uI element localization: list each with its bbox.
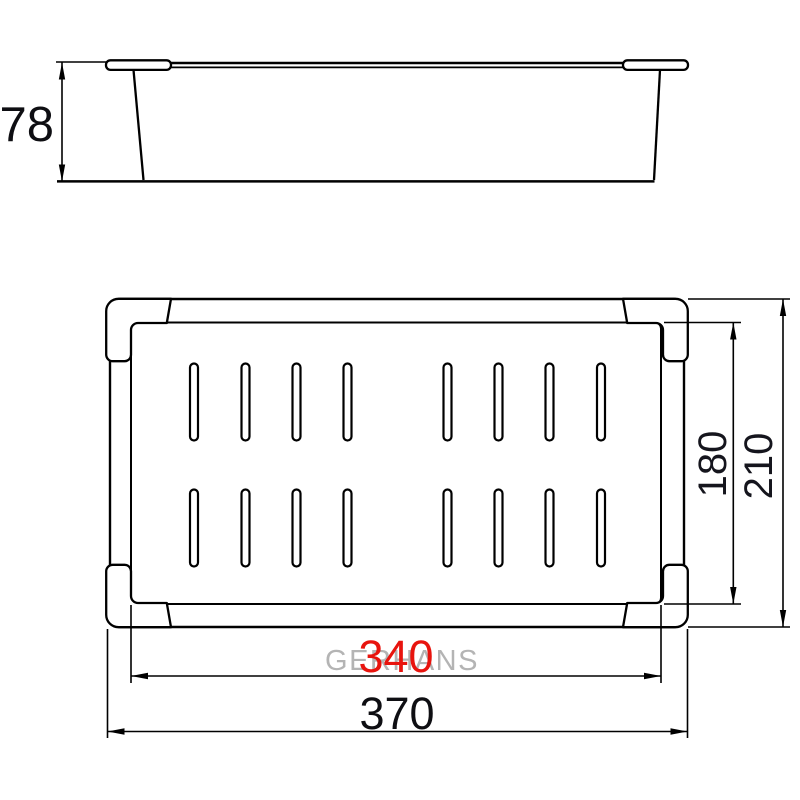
- slot: [546, 364, 554, 441]
- slot: [597, 490, 605, 567]
- slot: [242, 490, 250, 567]
- slot: [344, 490, 352, 567]
- dim-text-outer-width: 210: [737, 433, 781, 500]
- slot: [293, 364, 301, 441]
- side-right-tab: [623, 60, 688, 70]
- plan-outer-rim: [110, 299, 684, 627]
- slot: [242, 364, 250, 441]
- slot: [344, 364, 352, 441]
- side-left-tab: [106, 60, 171, 70]
- slot: [444, 490, 452, 567]
- slot: [546, 490, 554, 567]
- dim-text-inner-length: 340: [358, 631, 433, 682]
- slot: [190, 364, 198, 441]
- technical-drawing-canvas: 78: [0, 0, 800, 800]
- slot: [495, 364, 503, 441]
- slot: [293, 490, 301, 567]
- slot: [495, 490, 503, 567]
- slot: [190, 490, 198, 567]
- plan-view: [106, 299, 688, 627]
- slot: [444, 364, 452, 441]
- slot: [597, 364, 605, 441]
- dim-text-height: 78: [0, 98, 54, 152]
- dim-text-outer-length: 370: [359, 688, 434, 739]
- dim-text-inner-width: 180: [691, 431, 735, 498]
